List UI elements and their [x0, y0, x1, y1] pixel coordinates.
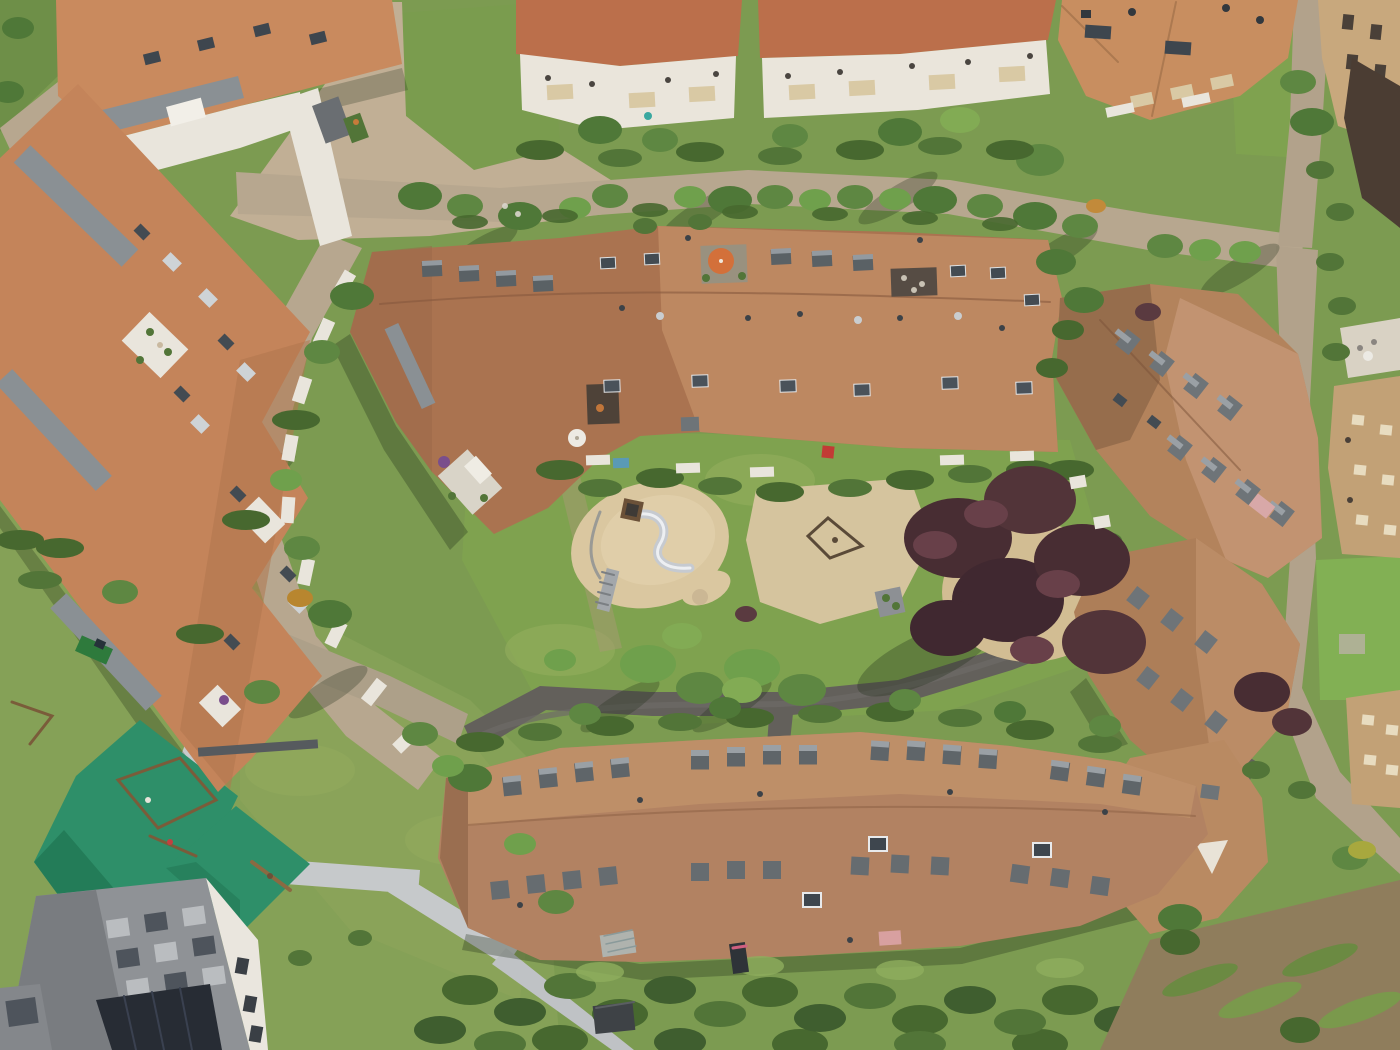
central-complex-part [763, 745, 781, 751]
buildings-north-part [1380, 424, 1393, 435]
central-complex-part [897, 315, 903, 321]
vegetation-part [756, 482, 804, 502]
central-complex-part [691, 863, 709, 881]
vegetation-part [986, 140, 1034, 160]
vegetation-part [1036, 958, 1084, 978]
grass-fields-part [1316, 556, 1400, 700]
vegetation-part [308, 600, 352, 628]
vegetation-part [837, 185, 873, 209]
buildings-north-part [1354, 464, 1367, 475]
vegetation-part [836, 140, 884, 160]
central-complex-part [490, 880, 510, 900]
objects-part [502, 203, 508, 209]
vegetation-part [272, 410, 320, 430]
vegetation-part [757, 185, 793, 209]
vegetation-part [244, 680, 280, 704]
central-complex-part [763, 861, 781, 879]
central-complex-part [854, 384, 870, 397]
vegetation-part [1006, 720, 1054, 740]
vegetation-part [676, 142, 724, 162]
buildings-north-part [1256, 16, 1264, 24]
buildings-west-part [281, 497, 296, 524]
buildings-north-part [689, 86, 716, 102]
central-complex-part [745, 315, 751, 321]
buildings-north-part [1347, 497, 1353, 503]
buildings-north-part [909, 63, 915, 69]
buildings-west-part [157, 342, 163, 348]
buildings-north-part [545, 75, 551, 81]
vegetation-part [778, 674, 826, 706]
central-complex-part [891, 855, 910, 874]
central-complex-part [942, 377, 958, 390]
vegetation-part [828, 479, 872, 497]
buildings-north-part [1027, 53, 1033, 59]
buildings-north-part [965, 59, 971, 65]
vegetation-part [620, 645, 676, 683]
objects-part [676, 463, 700, 474]
vegetation-part [176, 624, 224, 644]
vegetation-part [1272, 708, 1312, 736]
buildings-north-part [1362, 714, 1375, 725]
vegetation-part [536, 460, 584, 480]
building-modern-part [154, 942, 178, 963]
vegetation-part [1086, 199, 1106, 213]
central-complex-part [496, 270, 516, 276]
red-play-cube [821, 445, 834, 458]
buildings-north-part [1364, 754, 1377, 765]
vegetation-part [1229, 241, 1261, 263]
central-complex-part [691, 750, 709, 756]
buildings-north-part [1081, 10, 1091, 18]
vegetation-part [798, 705, 842, 723]
buildings-north-part [1346, 690, 1400, 808]
vegetation-part [592, 184, 628, 208]
vegetation-part [735, 606, 757, 622]
central-complex-part [637, 797, 643, 803]
vegetation-part [288, 950, 312, 966]
vegetation-part [1078, 735, 1122, 753]
vegetation-part [1036, 570, 1080, 598]
vegetation-part [544, 649, 576, 671]
objects-part [1010, 451, 1034, 462]
central-complex-part [907, 740, 925, 747]
vegetation-part [812, 207, 848, 221]
objects-part [575, 436, 579, 440]
central-complex-part [681, 417, 699, 432]
central-complex-part [853, 254, 873, 260]
vegetation-part [2, 17, 34, 39]
vegetation-part [910, 600, 986, 656]
central-complex-part [799, 745, 817, 751]
vegetation-part [452, 215, 488, 229]
vegetation-part [578, 479, 622, 497]
buildings-west-part [136, 356, 144, 364]
vegetation-part [1036, 249, 1076, 275]
central-complex-part [1033, 843, 1051, 857]
vegetation-part [1280, 1017, 1320, 1043]
vegetation-part [1158, 904, 1202, 932]
vegetation-part [892, 1005, 948, 1035]
tan-parasol [692, 589, 708, 605]
vegetation-part [694, 1001, 746, 1027]
vegetation-part [542, 209, 578, 223]
buildings-north-part [1352, 414, 1365, 425]
vegetation-part [742, 977, 798, 1007]
vegetation-part [398, 182, 442, 210]
central-complex-part [797, 311, 803, 317]
buildings-west-part [353, 119, 359, 125]
vegetation-part [348, 930, 372, 946]
central-complex-part [1016, 382, 1032, 395]
buildings-north-part [1370, 24, 1383, 40]
vegetation-part [1234, 672, 1290, 712]
central-complex-part [619, 305, 625, 311]
vegetation-part [1348, 841, 1376, 859]
buildings-north-part [1382, 474, 1395, 485]
building-modern-part [5, 997, 38, 1027]
vegetation-part [1160, 929, 1200, 955]
vegetation-part [876, 960, 924, 980]
vegetation-part [102, 580, 138, 604]
buildings-north-part [1371, 339, 1377, 345]
buildings-north-part [1165, 41, 1192, 56]
vegetation-part [494, 998, 546, 1026]
objects-part [892, 602, 900, 610]
buildings-north-part [929, 74, 956, 90]
central-complex-part [448, 492, 456, 500]
buildings-north-part [1085, 25, 1112, 40]
vegetation-part [658, 713, 702, 731]
central-complex-part [517, 902, 523, 908]
vegetation-part [1064, 287, 1104, 313]
central-complex-part [979, 748, 997, 755]
central-complex-part [1024, 294, 1040, 306]
vegetation-part [918, 137, 962, 155]
vegetation-part [1242, 761, 1270, 779]
vegetation-part [964, 500, 1008, 528]
vegetation-part [688, 214, 712, 230]
central-complex-part [812, 250, 832, 256]
vegetation-part [330, 282, 374, 310]
aerial-photo-scene [0, 0, 1400, 1050]
blue-pool [613, 458, 629, 469]
central-complex-part [931, 857, 950, 876]
central-complex-part [871, 740, 889, 747]
central-complex-part [757, 791, 763, 797]
central-complex-part [901, 275, 907, 281]
central-complex-part [990, 267, 1006, 279]
vegetation-part [598, 149, 642, 167]
vegetation-part [633, 218, 657, 234]
objects-part [750, 467, 774, 478]
central-complex-part [600, 257, 616, 269]
buildings-west-part [146, 328, 154, 336]
central-complex-part [943, 744, 961, 751]
central-complex-part [562, 870, 582, 890]
building-modern-part [182, 906, 206, 927]
central-complex-part [533, 275, 553, 281]
vegetation-part [304, 340, 340, 364]
central-complex-part [879, 930, 902, 946]
vegetation-part [1288, 781, 1316, 799]
central-complex-part [1050, 868, 1070, 888]
central-complex-part [604, 380, 620, 393]
vegetation-part [944, 986, 996, 1014]
central-complex-part [1200, 784, 1220, 800]
vegetation-part [886, 470, 934, 490]
aerial-photo-viewport [0, 0, 1400, 1050]
central-complex-part [1090, 876, 1110, 896]
buildings-north-part [1386, 724, 1399, 735]
central-complex-part [422, 260, 442, 266]
vegetation-part [402, 722, 438, 746]
vegetation-part [878, 118, 922, 146]
buildings-north-part [516, 0, 742, 66]
vegetation-part [940, 107, 980, 133]
central-complex-part [954, 312, 962, 320]
central-complex-part [780, 380, 796, 393]
buildings-north-part [629, 92, 656, 108]
building-modern-part [116, 948, 140, 969]
buildings-north-part [789, 84, 816, 100]
vegetation-part [1135, 303, 1161, 321]
buildings-north-part [849, 80, 876, 96]
central-complex-part [702, 274, 710, 282]
buildings-north-part [1342, 14, 1355, 30]
buildings-north-part [713, 71, 719, 77]
objects-part [625, 503, 639, 517]
buildings-north-part [1384, 524, 1397, 535]
vegetation-part [1042, 985, 1098, 1015]
buildings-north-part [1128, 8, 1136, 16]
greenhouse [600, 931, 637, 958]
objects-part [586, 455, 610, 466]
buildings-north-part [1339, 634, 1365, 654]
vegetation-part [674, 186, 706, 208]
vegetation-part [632, 203, 668, 217]
buildings-north-part [547, 84, 574, 100]
central-complex-part [459, 265, 479, 271]
central-complex-part [719, 259, 723, 263]
buildings-north-part [1345, 437, 1351, 443]
buildings-north-part [999, 66, 1026, 82]
vegetation-part [994, 701, 1026, 723]
central-complex-part [999, 325, 1005, 331]
vegetation-part [442, 975, 498, 1005]
objects-part [875, 587, 906, 618]
central-complex-part [771, 248, 791, 254]
vegetation-part [447, 194, 483, 218]
buildings-north-part [1222, 4, 1230, 12]
central-complex-part [438, 456, 450, 468]
vegetation-part [518, 723, 562, 741]
central-complex-part [692, 375, 708, 388]
vegetation-part [994, 1009, 1046, 1035]
vegetation-part [569, 703, 601, 725]
building-modern-part [144, 912, 168, 933]
central-complex-part [738, 272, 746, 280]
vegetation-part [1306, 161, 1334, 179]
central-complex-part [596, 404, 604, 412]
vegetation-part [1089, 715, 1121, 737]
vegetation-part [576, 962, 624, 982]
vegetation-part [967, 194, 1003, 218]
central-complex-part [847, 937, 853, 943]
vegetation-part [538, 890, 574, 914]
central-complex-part [727, 861, 745, 879]
objects-part [882, 594, 890, 602]
buildings-north-part [1357, 345, 1363, 351]
vegetation-part [1189, 239, 1221, 261]
vegetation-part [1062, 610, 1146, 674]
objects-part [832, 537, 838, 543]
central-complex-part [919, 281, 925, 287]
vegetation-part [270, 469, 302, 491]
vegetation-part [642, 128, 678, 152]
central-complex-part [598, 866, 618, 886]
vegetation-part [889, 689, 921, 711]
vegetation-part [794, 1004, 846, 1032]
vegetation-part [1326, 203, 1354, 221]
vegetation-part [948, 465, 992, 483]
buildings-north-part [665, 77, 671, 83]
central-complex-part [685, 235, 691, 241]
vegetation-part [709, 697, 741, 719]
vegetation-part [722, 205, 758, 219]
central-complex-part [656, 312, 664, 320]
vegetation-part [902, 211, 938, 225]
vegetation-part [913, 186, 957, 214]
buildings-north-part [1363, 351, 1373, 361]
central-complex-part [869, 837, 887, 851]
vegetation-part [879, 188, 911, 210]
buildings-west-part [164, 348, 172, 356]
central-complex-part [803, 893, 821, 907]
vegetation-part [844, 983, 896, 1009]
central-complex-part [644, 253, 660, 265]
central-complex-part [947, 789, 953, 795]
objects-part [940, 455, 964, 466]
central-complex-part [851, 857, 870, 876]
central-complex-part [911, 287, 917, 293]
vegetation-part [287, 589, 313, 607]
vegetation-part [516, 140, 564, 160]
central-complex-part [917, 237, 923, 243]
vegetation-part [578, 116, 622, 144]
vegetation-part [982, 217, 1018, 231]
buildings-north-part [785, 73, 791, 79]
vegetation-part [1036, 358, 1068, 378]
vegetation-part [1062, 214, 1098, 238]
objects-part [267, 873, 273, 879]
building-modern-part [202, 966, 226, 987]
central-complex-part [1102, 809, 1108, 815]
vegetation-part [1147, 234, 1183, 258]
buildings-west-part [219, 695, 229, 705]
buildings-north-part [589, 81, 595, 87]
vegetation-part [772, 124, 808, 148]
buildings-north-part [1356, 514, 1369, 525]
vegetation-part [1052, 320, 1084, 340]
vegetation-part [432, 755, 464, 777]
buildings-north-part [644, 112, 652, 120]
buildings-north-part [837, 69, 843, 75]
vegetation-part [644, 976, 696, 1004]
vegetation-part [938, 709, 982, 727]
building-modern-part [106, 918, 130, 939]
central-complex-part [480, 494, 488, 502]
vegetation-part [222, 510, 270, 530]
vegetation-part [18, 571, 62, 589]
objects-part [515, 211, 521, 217]
buildings-north-part [1340, 318, 1400, 378]
vegetation-part [284, 536, 320, 560]
objects-part [145, 797, 151, 803]
objects-part [733, 946, 746, 948]
central-complex-part [854, 316, 862, 324]
vegetation-part [1010, 636, 1054, 664]
vegetation-part [1322, 343, 1350, 361]
central-complex-part [950, 265, 966, 277]
central-complex-part [526, 874, 546, 894]
vegetation-part [1290, 108, 1334, 136]
vegetation-part [1328, 297, 1356, 315]
vegetation-part [456, 732, 504, 752]
objects-part [167, 839, 173, 845]
buildings-north-part [1386, 764, 1399, 775]
vegetation-part [698, 477, 742, 495]
vegetation-part [1013, 202, 1057, 230]
vegetation-part [504, 833, 536, 855]
vegetation-part [662, 623, 702, 649]
central-complex-part [727, 747, 745, 753]
vegetation-part [414, 1016, 466, 1044]
building-modern-part [192, 936, 216, 957]
central-complex-part [1010, 864, 1030, 884]
vegetation-part [1280, 70, 1316, 94]
vegetation-part [1316, 253, 1344, 271]
vegetation-part [758, 147, 802, 165]
vegetation-part [913, 531, 957, 559]
